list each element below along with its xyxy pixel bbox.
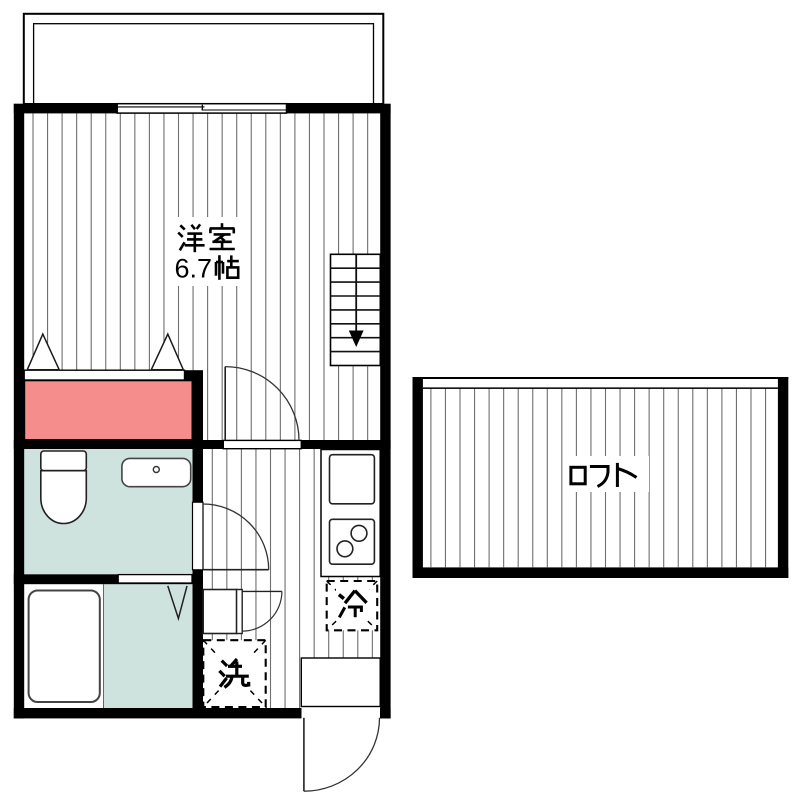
svg-text:6.7: 6.7 [175, 253, 213, 283]
